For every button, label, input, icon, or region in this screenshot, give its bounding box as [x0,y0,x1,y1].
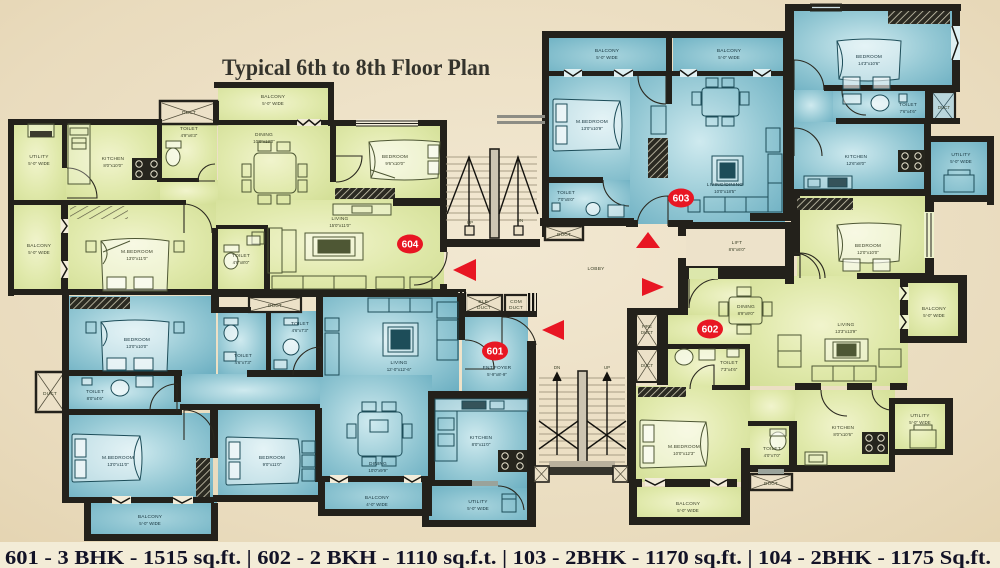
svg-text:DN: DN [517,218,523,223]
svg-text:LIVING/DINING: LIVING/DINING [707,182,744,188]
svg-text:13'0"x10'9": 13'0"x10'9" [581,126,603,131]
svg-text:601 - 3 BHK - 1515 sq.ft. |: 601 - 3 BHK - 1515 sq.ft. | 602 - 2 BKH … [5,547,991,568]
svg-text:DINING: DINING [737,304,755,310]
svg-text:4'6"x8'0": 4'6"x8'0" [233,260,250,265]
svg-text:5'-0" WIDE: 5'-0" WIDE [467,506,488,511]
svg-text:Typical 6th to 8th Floor Plan: Typical 6th to 8th Floor Plan [222,55,490,80]
svg-text:5'-0" WIDE: 5'-0" WIDE [950,159,971,164]
svg-text:5'-0" WIDE: 5'-0" WIDE [923,313,944,318]
svg-text:KITCHEN: KITCHEN [470,435,493,441]
svg-text:DUCT: DUCT [764,481,778,487]
svg-text:10'0"x13'0": 10'0"x13'0" [253,139,275,144]
svg-text:BEDROOM: BEDROOM [259,455,285,461]
svg-text:UP: UP [604,365,610,370]
svg-text:LIVING: LIVING [838,322,855,328]
svg-text:TOILET: TOILET [291,321,309,327]
svg-text:5'-0" WIDE: 5'-0" WIDE [28,250,49,255]
svg-text:DUCT: DUCT [268,303,282,309]
svg-text:4'0"x7'0": 4'0"x7'0" [764,453,781,458]
svg-text:DINING: DINING [255,132,273,138]
svg-text:KITCHEN: KITCHEN [102,156,125,162]
svg-text:12'-0"x12'-6": 12'-0"x12'-6" [387,367,412,372]
svg-text:M.BEDROOM: M.BEDROOM [668,444,700,450]
svg-text:UTILITY: UTILITY [910,413,930,419]
svg-text:LIFT: LIFT [732,240,743,246]
svg-text:UTILITY: UTILITY [29,154,49,160]
svg-text:BALCONY: BALCONY [922,306,947,312]
svg-text:DUCT: DUCT [641,363,654,368]
svg-text:DUCT: DUCT [938,105,951,110]
svg-text:4'6"x7'3": 4'6"x7'3" [235,360,252,365]
svg-text:7'6"x4'6": 7'6"x4'6" [900,109,917,114]
svg-text:9'6"x10'0": 9'6"x10'0" [385,161,405,166]
svg-text:5'-0" WIDE: 5'-0" WIDE [28,161,49,166]
svg-text:13'3"x13'9": 13'3"x13'9" [835,329,857,334]
svg-text:TOILET: TOILET [720,360,738,366]
svg-text:BALCONY: BALCONY [27,243,52,249]
svg-text:UTILITY: UTILITY [468,499,488,505]
svg-text:601: 601 [487,347,504,358]
svg-text:10'0"x12'3": 10'0"x12'3" [673,451,695,456]
svg-text:BEDROOM: BEDROOM [856,54,882,60]
svg-text:4'9"x6'3": 4'9"x6'3" [181,133,198,138]
svg-text:4'-0" WIDE: 4'-0" WIDE [366,502,387,507]
svg-text:LIVING: LIVING [391,360,408,366]
svg-text:13'0"x11'0": 13'0"x11'0" [107,462,129,467]
svg-text:TOILET: TOILET [234,353,252,359]
svg-text:TOILET: TOILET [899,102,917,108]
svg-text:8'0"x11'0": 8'0"x11'0" [472,442,491,447]
svg-text:ELE.: ELE. [478,299,489,305]
svg-text:7'3"x4'6": 7'3"x4'6" [721,367,738,372]
svg-text:13'0"x11'0": 13'0"x11'0" [126,256,148,261]
svg-text:M.BEDROOM: M.BEDROOM [576,119,608,125]
svg-text:TOILET: TOILET [232,253,250,259]
svg-text:5'-0" WIDE: 5'-0" WIDE [262,101,283,106]
svg-text:BALCONY: BALCONY [676,501,701,507]
svg-text:KITCHEN: KITCHEN [832,425,855,431]
svg-text:8'0"x10'6": 8'0"x10'6" [833,432,853,437]
svg-text:7'0"x5'0": 7'0"x5'0" [558,197,575,202]
svg-text:12'0"x10'0": 12'0"x10'0" [857,250,879,255]
svg-text:DUCT: DUCT [641,330,654,335]
svg-text:5'-0" WIDE: 5'-0" WIDE [596,55,617,60]
svg-text:BALCONY: BALCONY [261,94,286,100]
svg-text:BEDROOM: BEDROOM [855,243,881,249]
svg-text:DUCT: DUCT [43,391,57,397]
svg-text:TOILET: TOILET [557,190,575,196]
svg-text:BALCONY: BALCONY [595,48,620,54]
svg-text:8'6"x6'0": 8'6"x6'0" [729,247,746,252]
svg-text:4'6"x7'3": 4'6"x7'3" [292,328,309,333]
svg-text:603: 603 [673,194,690,205]
svg-text:BEDROOM: BEDROOM [382,154,408,160]
svg-text:5'-0" WIDE: 5'-0" WIDE [909,420,930,425]
svg-text:12'6"x8'0": 12'6"x8'0" [846,161,866,166]
svg-text:BALCONY: BALCONY [138,514,163,520]
svg-text:DUCT: DUCT [477,305,491,311]
svg-text:DUCT: DUCT [182,110,196,116]
svg-text:15'0"x11'0": 15'0"x11'0" [329,223,351,228]
svg-text:TOILET: TOILET [763,446,781,452]
svg-text:BEDROOM: BEDROOM [124,337,150,343]
svg-text:ENT.FOYER: ENT.FOYER [483,365,512,371]
svg-text:9'0"x11'0": 9'0"x11'0" [263,462,282,467]
svg-text:5'-0" WIDE: 5'-0" WIDE [139,521,160,526]
svg-text:604: 604 [402,240,419,251]
svg-text:BALCONY: BALCONY [717,48,742,54]
svg-text:UP: UP [467,220,473,225]
svg-text:KITCHEN: KITCHEN [845,154,868,160]
svg-text:COM: COM [510,299,522,305]
svg-text:LIVING: LIVING [332,216,349,222]
svg-text:DUCT: DUCT [557,232,571,238]
svg-text:BALCONY: BALCONY [365,495,390,501]
svg-text:DUCT: DUCT [509,305,523,311]
svg-text:14'3"x10'6": 14'3"x10'6" [858,61,880,66]
svg-text:5'-0" WIDE: 5'-0" WIDE [718,55,739,60]
svg-text:8'0"x4'6": 8'0"x4'6" [87,396,104,401]
svg-text:602: 602 [702,325,719,336]
svg-text:DN: DN [554,365,560,370]
svg-text:10'0"x18'5": 10'0"x18'5" [714,189,736,194]
svg-text:10'0"x9'9": 10'0"x9'9" [368,468,388,473]
svg-text:DINING: DINING [369,461,387,467]
svg-text:M.BEDROOM: M.BEDROOM [102,455,134,461]
svg-text:TOILET: TOILET [180,126,198,132]
svg-text:M.BEDROOM: M.BEDROOM [121,249,153,255]
svg-text:8'9"x9'0": 8'9"x9'0" [738,311,755,316]
svg-text:8'0"x10'0": 8'0"x10'0" [103,163,123,168]
svg-text:TOILET: TOILET [86,389,104,395]
svg-text:13'0"x10'0": 13'0"x10'0" [126,344,148,349]
svg-text:FIRE: FIRE [642,324,652,329]
svg-text:5'-0" WIDE: 5'-0" WIDE [677,508,698,513]
svg-text:UTILITY: UTILITY [951,152,971,158]
svg-text:LOBBY: LOBBY [588,266,606,272]
svg-text:5'-9"x8'-9": 5'-9"x8'-9" [487,372,507,377]
